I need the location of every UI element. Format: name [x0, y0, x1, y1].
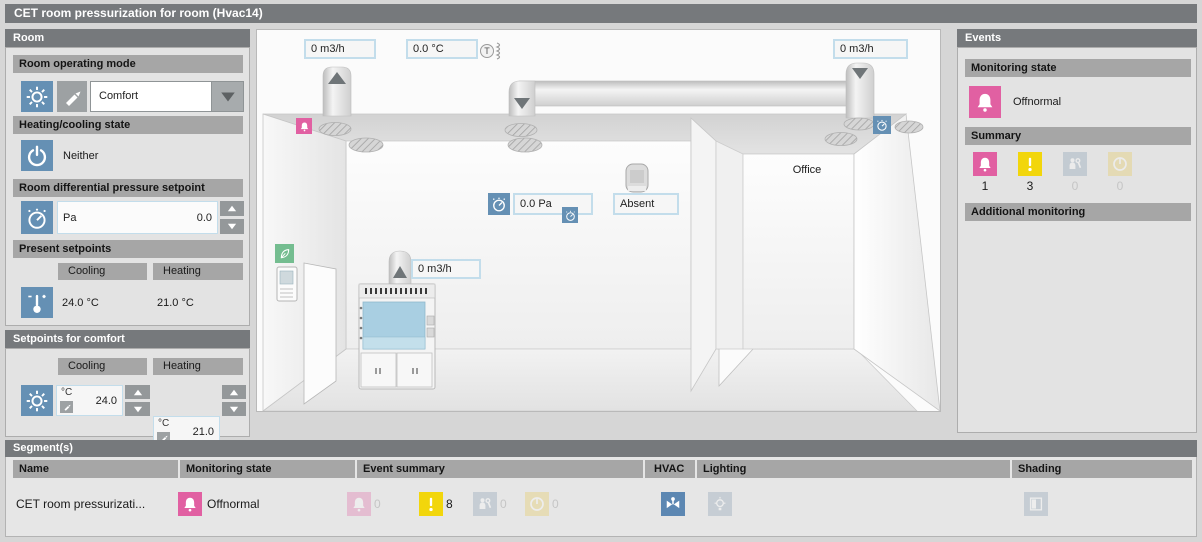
events-panel-header: Events — [957, 29, 1197, 47]
heating-spinner-up[interactable] — [222, 385, 246, 399]
column-header-lighting: Lighting — [697, 460, 1010, 478]
pressure-setpoint-field[interactable]: Pa 0.0 — [57, 201, 218, 234]
operating-mode-value: Comfort — [91, 82, 211, 111]
alarm-bell-icon — [969, 86, 1001, 118]
pressure-spinner-down[interactable] — [220, 219, 244, 234]
window-title: CET room pressurization for room (Hvac14… — [5, 4, 1197, 23]
comfort-cooling-field[interactable]: °C 24.0 — [56, 385, 123, 416]
pressure-gauge-icon — [488, 193, 510, 215]
office-left-wall — [716, 141, 743, 349]
monitoring-state-header: Monitoring state — [965, 59, 1191, 77]
room-panel: Room operating mode Comfort Heating/cool… — [5, 47, 250, 326]
lighting-bulb-icon[interactable] — [708, 492, 732, 516]
diff-pressure-section-header: Room differential pressure setpoint — [13, 179, 243, 197]
heating-unit: °C — [158, 418, 169, 429]
pressure-unit: Pa — [63, 212, 76, 224]
room-operator-unit — [277, 267, 297, 301]
comfort-heating-label: Heating — [153, 358, 243, 375]
segment-alarm-count: 0 — [374, 497, 390, 511]
comfort-cooling-label: Cooling — [58, 358, 147, 375]
pressure-gauge-icon — [21, 201, 53, 234]
segments-table: Name Monitoring state Event summary HVAC… — [5, 457, 1197, 537]
comfort-cooling-value: 24.0 — [96, 386, 117, 415]
edit-pencil-icon[interactable] — [57, 81, 87, 112]
present-heating-value: 21.0 °C — [157, 287, 242, 318]
warning-count: 3 — [1018, 179, 1042, 193]
fume-hood-flow-field: 0 m3/h — [411, 259, 481, 279]
sun-icon — [21, 81, 53, 112]
thermometer-icon — [21, 287, 53, 318]
desigo-room-page: { "title": "CET room pressurization for … — [0, 0, 1202, 542]
svg-text:T: T — [484, 46, 490, 56]
summary-header: Summary — [965, 127, 1191, 145]
supply-temp-field: 0.0 °C — [406, 39, 478, 59]
cooling-unit: °C — [61, 387, 72, 398]
present-cooling-value: 24.0 °C — [62, 287, 147, 318]
alarm-bell-badge-icon — [296, 118, 312, 134]
pressure-sensor-badge-icon — [562, 207, 578, 223]
room-scene — [257, 30, 940, 411]
segment-fault-icon — [473, 492, 497, 516]
heating-cooling-value: Neither — [63, 140, 213, 171]
presence-state-field: Absent — [613, 193, 679, 215]
room-pressure-value: 0.0 Pa — [520, 198, 552, 210]
cooling-spinner-up[interactable] — [125, 385, 150, 399]
additional-monitoring-header: Additional monitoring — [965, 203, 1191, 221]
disabled-count: 0 — [1108, 179, 1132, 193]
segment-alarm-bell-icon — [178, 492, 202, 516]
cooling-spinner-down[interactable] — [125, 402, 150, 416]
present-heating-label: Heating — [153, 263, 243, 280]
green-leaf-icon — [275, 244, 294, 263]
segment-fault-count: 0 — [500, 497, 516, 511]
disabled-summary-icon[interactable] — [1108, 152, 1132, 176]
comfort-sun-icon — [21, 385, 53, 416]
heating-spinner-down[interactable] — [222, 402, 246, 416]
supply-airflow-field: 0 m3/h — [304, 39, 376, 59]
segment-alarm-icon — [347, 492, 371, 516]
office-label: Office — [777, 162, 837, 178]
fault-count: 0 — [1063, 179, 1087, 193]
room-pressure-field: 0.0 Pa — [513, 193, 593, 215]
supply-airflow-value: 0 m3/h — [311, 43, 345, 55]
segment-warning-icon — [419, 492, 443, 516]
cabinet-door — [361, 353, 396, 387]
segment-monitoring-value: Offnormal — [207, 492, 327, 516]
fume-hood-flow-value: 0 m3/h — [418, 263, 452, 275]
alarm-count: 1 — [973, 179, 997, 193]
present-cooling-label: Cooling — [58, 263, 147, 280]
chevron-down-icon — [219, 88, 237, 106]
temp-sensor-icon: T — [479, 39, 507, 63]
supply-temp-value: 0.0 °C — [413, 43, 444, 55]
room-panel-header: Room — [5, 29, 250, 47]
extract-airflow-value: 0 m3/h — [840, 43, 874, 55]
lab-door — [304, 263, 336, 404]
column-header-hvac: HVAC — [645, 460, 695, 478]
segment-row-name[interactable]: CET room pressurizati... — [16, 492, 176, 516]
extract-airflow-field: 0 m3/h — [833, 39, 908, 59]
column-header-monitoring: Monitoring state — [180, 460, 355, 478]
power-icon — [21, 140, 53, 171]
present-setpoints-section-header: Present setpoints — [13, 240, 243, 258]
operating-mode-section-header: Room operating mode — [13, 55, 243, 73]
heating-cooling-section-header: Heating/cooling state — [13, 116, 243, 134]
pressure-spinner-up[interactable] — [220, 201, 244, 216]
fume-hood — [359, 284, 435, 389]
comfort-panel: Cooling Heating °C 24.0 °C 21.0 — [5, 348, 250, 437]
column-header-shading: Shading — [1012, 460, 1192, 478]
divider-wall — [691, 118, 716, 391]
hvac-valve-icon[interactable] — [661, 492, 685, 516]
segment-disabled-count: 0 — [552, 497, 568, 511]
segment-warning-count: 8 — [446, 497, 462, 511]
monitoring-state-value: Offnormal — [1013, 86, 1163, 118]
dropdown-arrow-button[interactable] — [211, 82, 243, 111]
column-header-name: Name — [13, 460, 178, 478]
segments-panel-header: Segment(s) — [5, 440, 1197, 457]
pressure-value: 0.0 — [197, 212, 212, 224]
office-sensor-badge-icon — [873, 116, 891, 134]
office-back-wall — [743, 154, 854, 349]
presence-state-value: Absent — [620, 198, 654, 210]
presence-detector — [626, 164, 648, 192]
pencil-badge-icon — [60, 401, 73, 413]
cabinet-door — [397, 353, 432, 387]
segment-disabled-icon — [525, 492, 549, 516]
warning-summary-icon[interactable] — [1018, 152, 1042, 176]
fault-summary-icon[interactable] — [1063, 152, 1087, 176]
comfort-panel-header: Setpoints for comfort — [5, 330, 250, 348]
shading-blind-icon[interactable] — [1024, 492, 1048, 516]
operating-mode-dropdown[interactable]: Comfort — [90, 81, 244, 112]
alarm-summary-icon[interactable] — [973, 152, 997, 176]
room-3d-view: 0 m3/h 0.0 °C T 0 m3/h 0 m3/h 0.0 Pa Abs… — [256, 29, 941, 412]
column-header-events: Event summary — [357, 460, 643, 478]
events-panel: Monitoring state Offnormal Summary 1 3 0… — [957, 47, 1197, 433]
